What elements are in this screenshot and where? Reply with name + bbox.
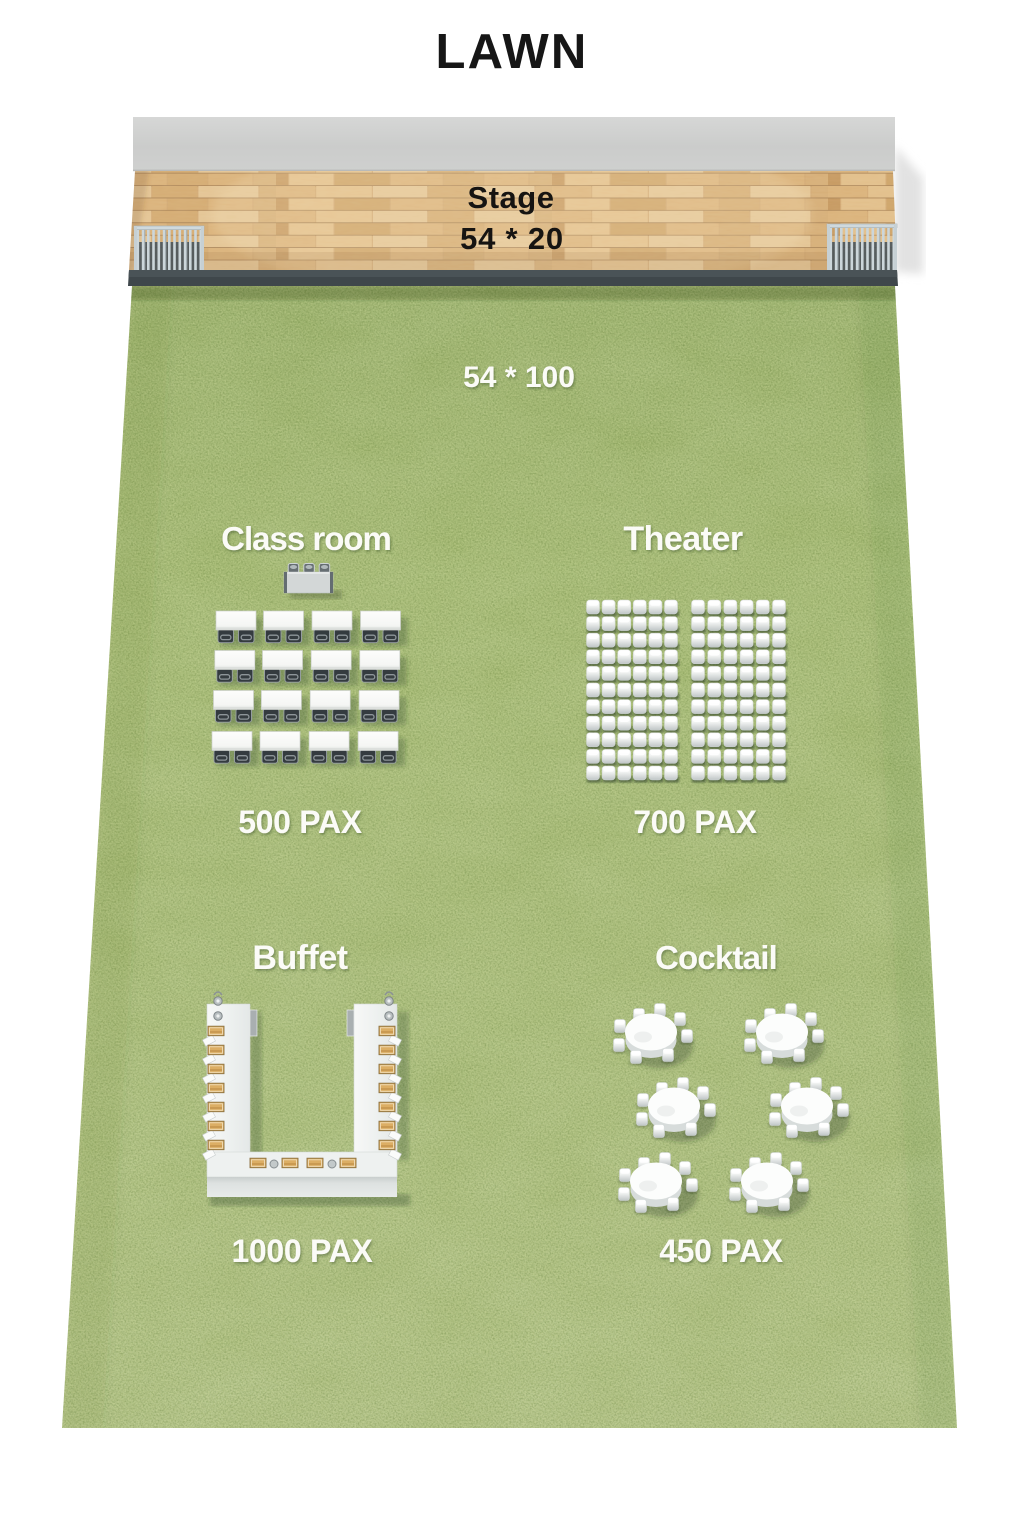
svg-text:700 PAX: 700 PAX	[633, 804, 758, 840]
svg-text:Cocktail: Cocktail	[655, 939, 777, 976]
svg-text:54 * 20: 54 * 20	[460, 221, 564, 256]
svg-text:500 PAX: 500 PAX	[238, 804, 363, 840]
svg-text:54 * 100: 54 * 100	[463, 361, 575, 394]
svg-text:LAWN: LAWN	[435, 25, 588, 79]
svg-text:Theater: Theater	[623, 520, 743, 558]
svg-text:Buffet: Buffet	[252, 939, 347, 977]
svg-text:Stage: Stage	[468, 180, 555, 215]
svg-text:1000 PAX: 1000 PAX	[231, 1233, 373, 1269]
svg-text:450 PAX: 450 PAX	[659, 1233, 784, 1269]
svg-text:Class room: Class room	[221, 520, 391, 557]
